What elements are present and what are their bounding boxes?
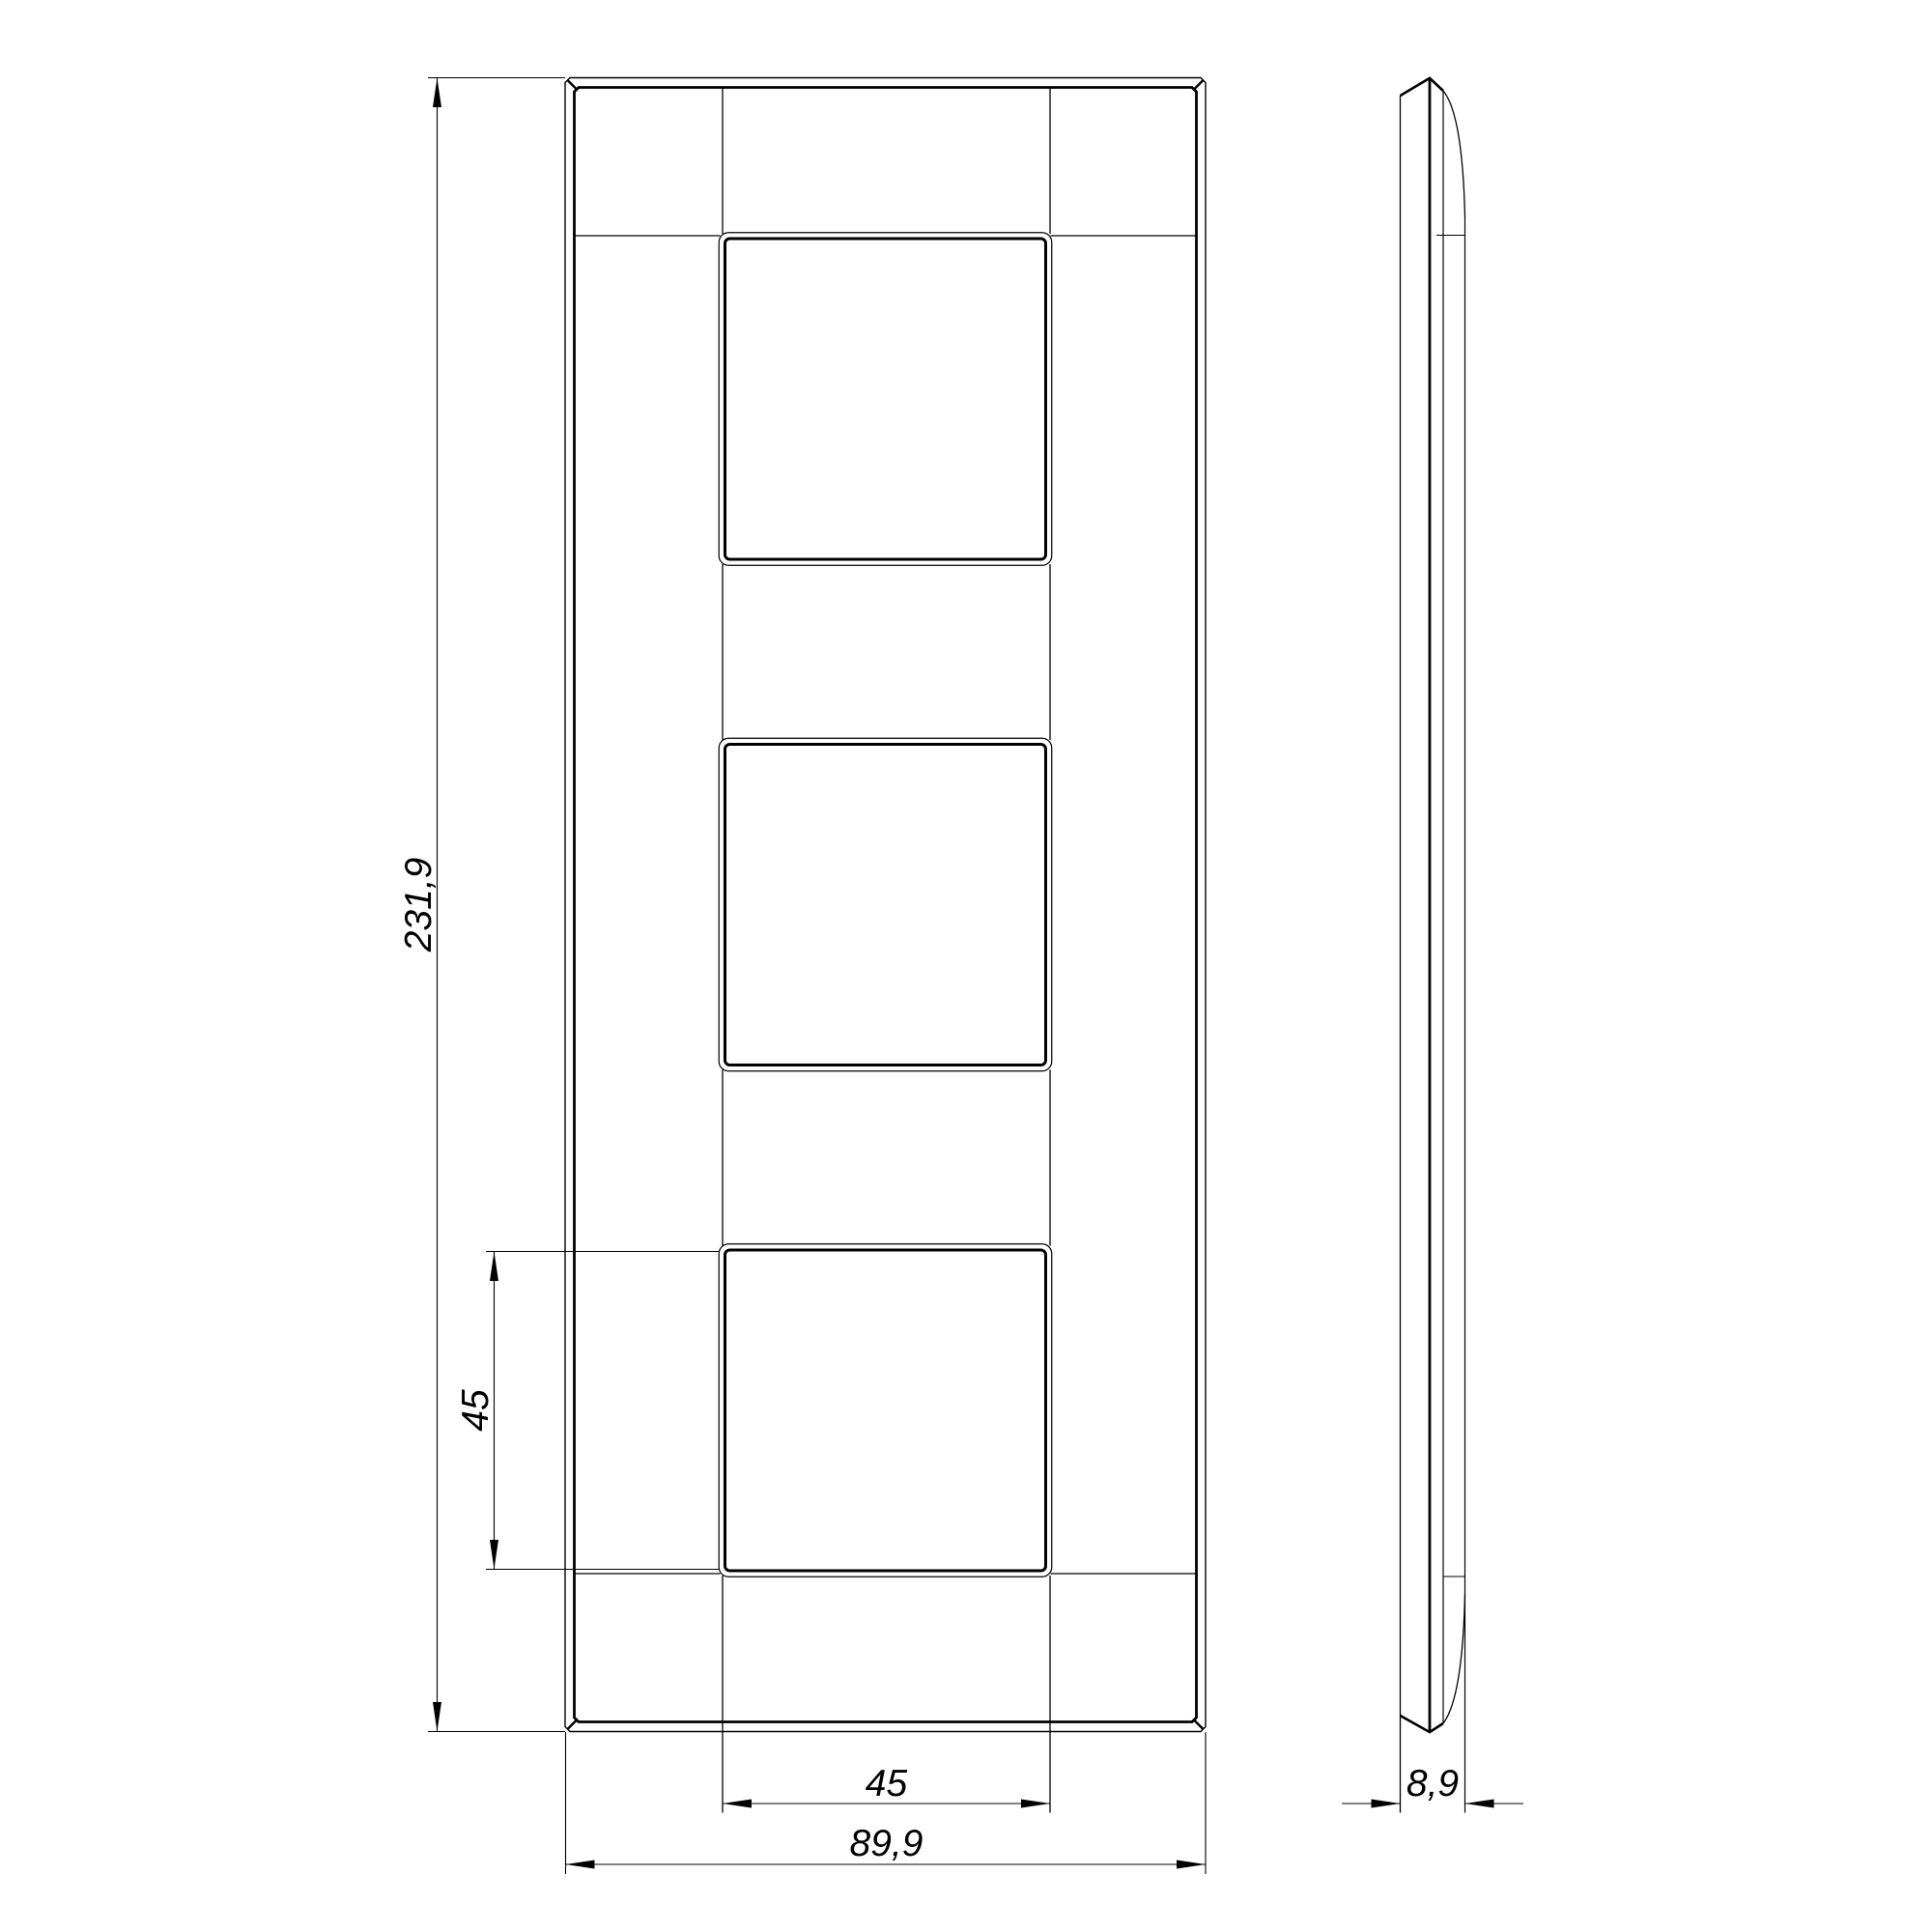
svg-text:8,9: 8,9	[1406, 1763, 1459, 1804]
svg-text:45: 45	[866, 1763, 908, 1804]
svg-text:45: 45	[455, 1389, 497, 1432]
svg-text:89,9: 89,9	[850, 1823, 923, 1864]
svg-text:231,9: 231,9	[398, 858, 440, 953]
